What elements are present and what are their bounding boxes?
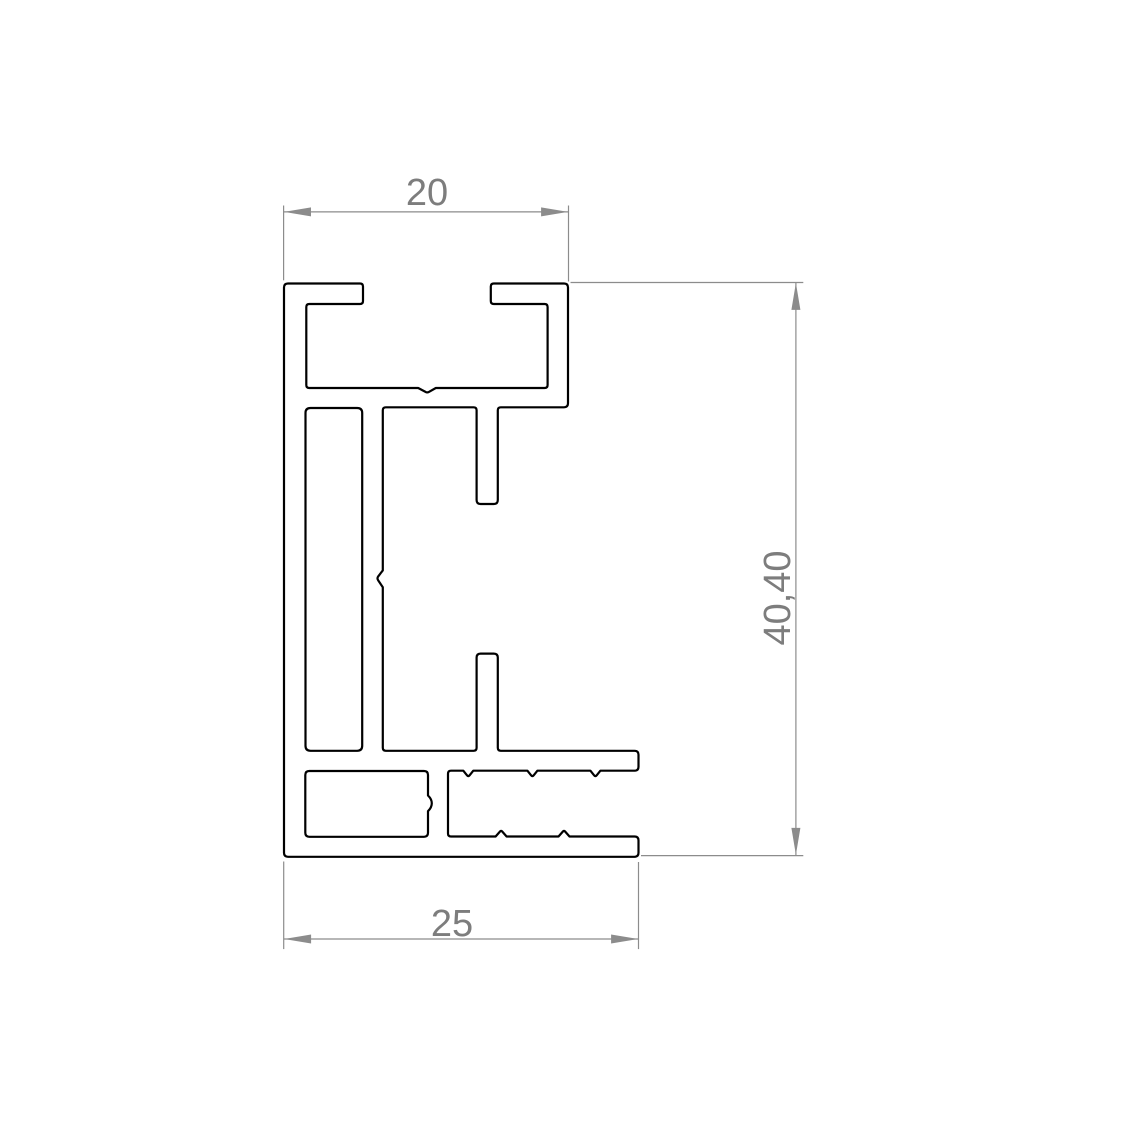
svg-text:25: 25 — [431, 903, 473, 945]
svg-text:40,40: 40,40 — [757, 550, 799, 645]
svg-text:20: 20 — [406, 172, 448, 214]
